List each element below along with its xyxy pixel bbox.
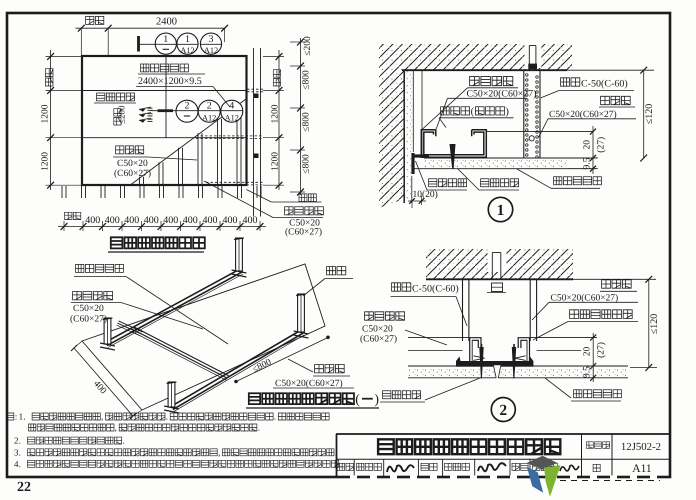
svg-text:1200: 1200 [271, 104, 281, 123]
svg-text:400: 400 [163, 215, 178, 226]
svg-text:(C60×27): (C60×27) [360, 335, 397, 345]
svg-text:≤120: ≤120 [644, 104, 655, 125]
svg-text:C-50(C-60): C-50(C-60) [412, 284, 459, 295]
svg-text:9.5: 9.5 [583, 157, 593, 169]
svg-text:C50×20(C60×27): C50×20(C60×27) [467, 88, 537, 99]
svg-text:400: 400 [183, 215, 198, 226]
svg-text:1200: 1200 [41, 104, 51, 123]
svg-text:C50×20: C50×20 [362, 325, 393, 335]
svg-text:2: 2 [185, 101, 190, 112]
svg-text:≤800: ≤800 [302, 70, 312, 90]
svg-text:(: ( [471, 106, 475, 117]
svg-text:): ) [505, 106, 509, 117]
svg-text:400: 400 [203, 215, 218, 226]
svg-text:400: 400 [85, 215, 100, 226]
svg-text:≤120: ≤120 [649, 314, 660, 335]
svg-text:10(20): 10(20) [413, 190, 438, 200]
svg-text:C50×20: C50×20 [117, 159, 148, 169]
svg-text:22: 22 [17, 480, 31, 495]
svg-text:,: , [115, 423, 117, 433]
svg-text:.: . [258, 423, 260, 433]
svg-text:400: 400 [223, 215, 238, 226]
svg-text:400: 400 [144, 215, 159, 226]
svg-text::: : [15, 412, 18, 422]
svg-text:(27): (27) [597, 137, 607, 153]
svg-text:A12: A12 [180, 46, 194, 55]
svg-text:2400: 2400 [156, 17, 177, 28]
svg-text:.: . [123, 436, 125, 446]
svg-text:≤800: ≤800 [302, 112, 312, 132]
svg-text:400: 400 [243, 215, 258, 226]
svg-text:(27): (27) [597, 342, 607, 358]
svg-text:.: . [19, 447, 21, 457]
svg-text:A12: A12 [204, 46, 218, 55]
svg-text:2400×1200×9.5: 2400×1200×9.5 [138, 76, 202, 87]
svg-text:1: 1 [163, 34, 168, 45]
svg-text:,: , [101, 412, 103, 422]
svg-text:≤200: ≤200 [117, 105, 127, 124]
svg-text:C50×20(C60×27): C50×20(C60×27) [275, 379, 343, 389]
svg-text:): ) [374, 392, 379, 407]
svg-text:.: . [166, 412, 168, 422]
svg-text:4: 4 [229, 101, 234, 112]
svg-text:(C60×27): (C60×27) [285, 228, 322, 238]
svg-text:.: . [274, 412, 276, 422]
svg-text:1200: 1200 [41, 152, 51, 171]
svg-text:A12: A12 [225, 113, 239, 122]
svg-text:C50×20(C60×27): C50×20(C60×27) [551, 293, 619, 303]
svg-text:.: . [340, 459, 342, 469]
svg-text:≤200: ≤200 [303, 36, 313, 56]
svg-text:≤800: ≤800 [251, 357, 273, 375]
svg-text:1: 1 [497, 202, 505, 219]
svg-text:.: . [19, 436, 21, 446]
svg-text:20: 20 [583, 140, 593, 150]
svg-text:2: 2 [499, 402, 507, 419]
svg-text:9.5: 9.5 [583, 366, 593, 378]
svg-text:A12: A12 [202, 113, 216, 122]
svg-text:(C60×27): (C60×27) [114, 169, 151, 179]
svg-text:400: 400 [105, 215, 120, 226]
svg-text:(C60×27): (C60×27) [70, 315, 107, 325]
svg-text:C-50(C-60): C-50(C-60) [581, 79, 628, 90]
svg-text:.: . [23, 412, 25, 422]
svg-text:,: , [218, 447, 220, 457]
svg-text:.: . [19, 459, 21, 469]
svg-text:(: ( [355, 392, 360, 407]
svg-text:400: 400 [91, 379, 108, 397]
svg-text:1: 1 [185, 34, 190, 45]
svg-text:1200: 1200 [271, 152, 281, 171]
svg-text:3: 3 [209, 34, 214, 45]
svg-text:A11: A11 [632, 463, 652, 475]
svg-text:12J502-2: 12J502-2 [621, 441, 661, 453]
svg-text:≤800: ≤800 [302, 154, 312, 174]
svg-text:400: 400 [124, 215, 139, 226]
svg-text:C50×20: C50×20 [73, 304, 104, 314]
svg-text:20: 20 [583, 347, 593, 357]
svg-text:2: 2 [207, 101, 212, 112]
